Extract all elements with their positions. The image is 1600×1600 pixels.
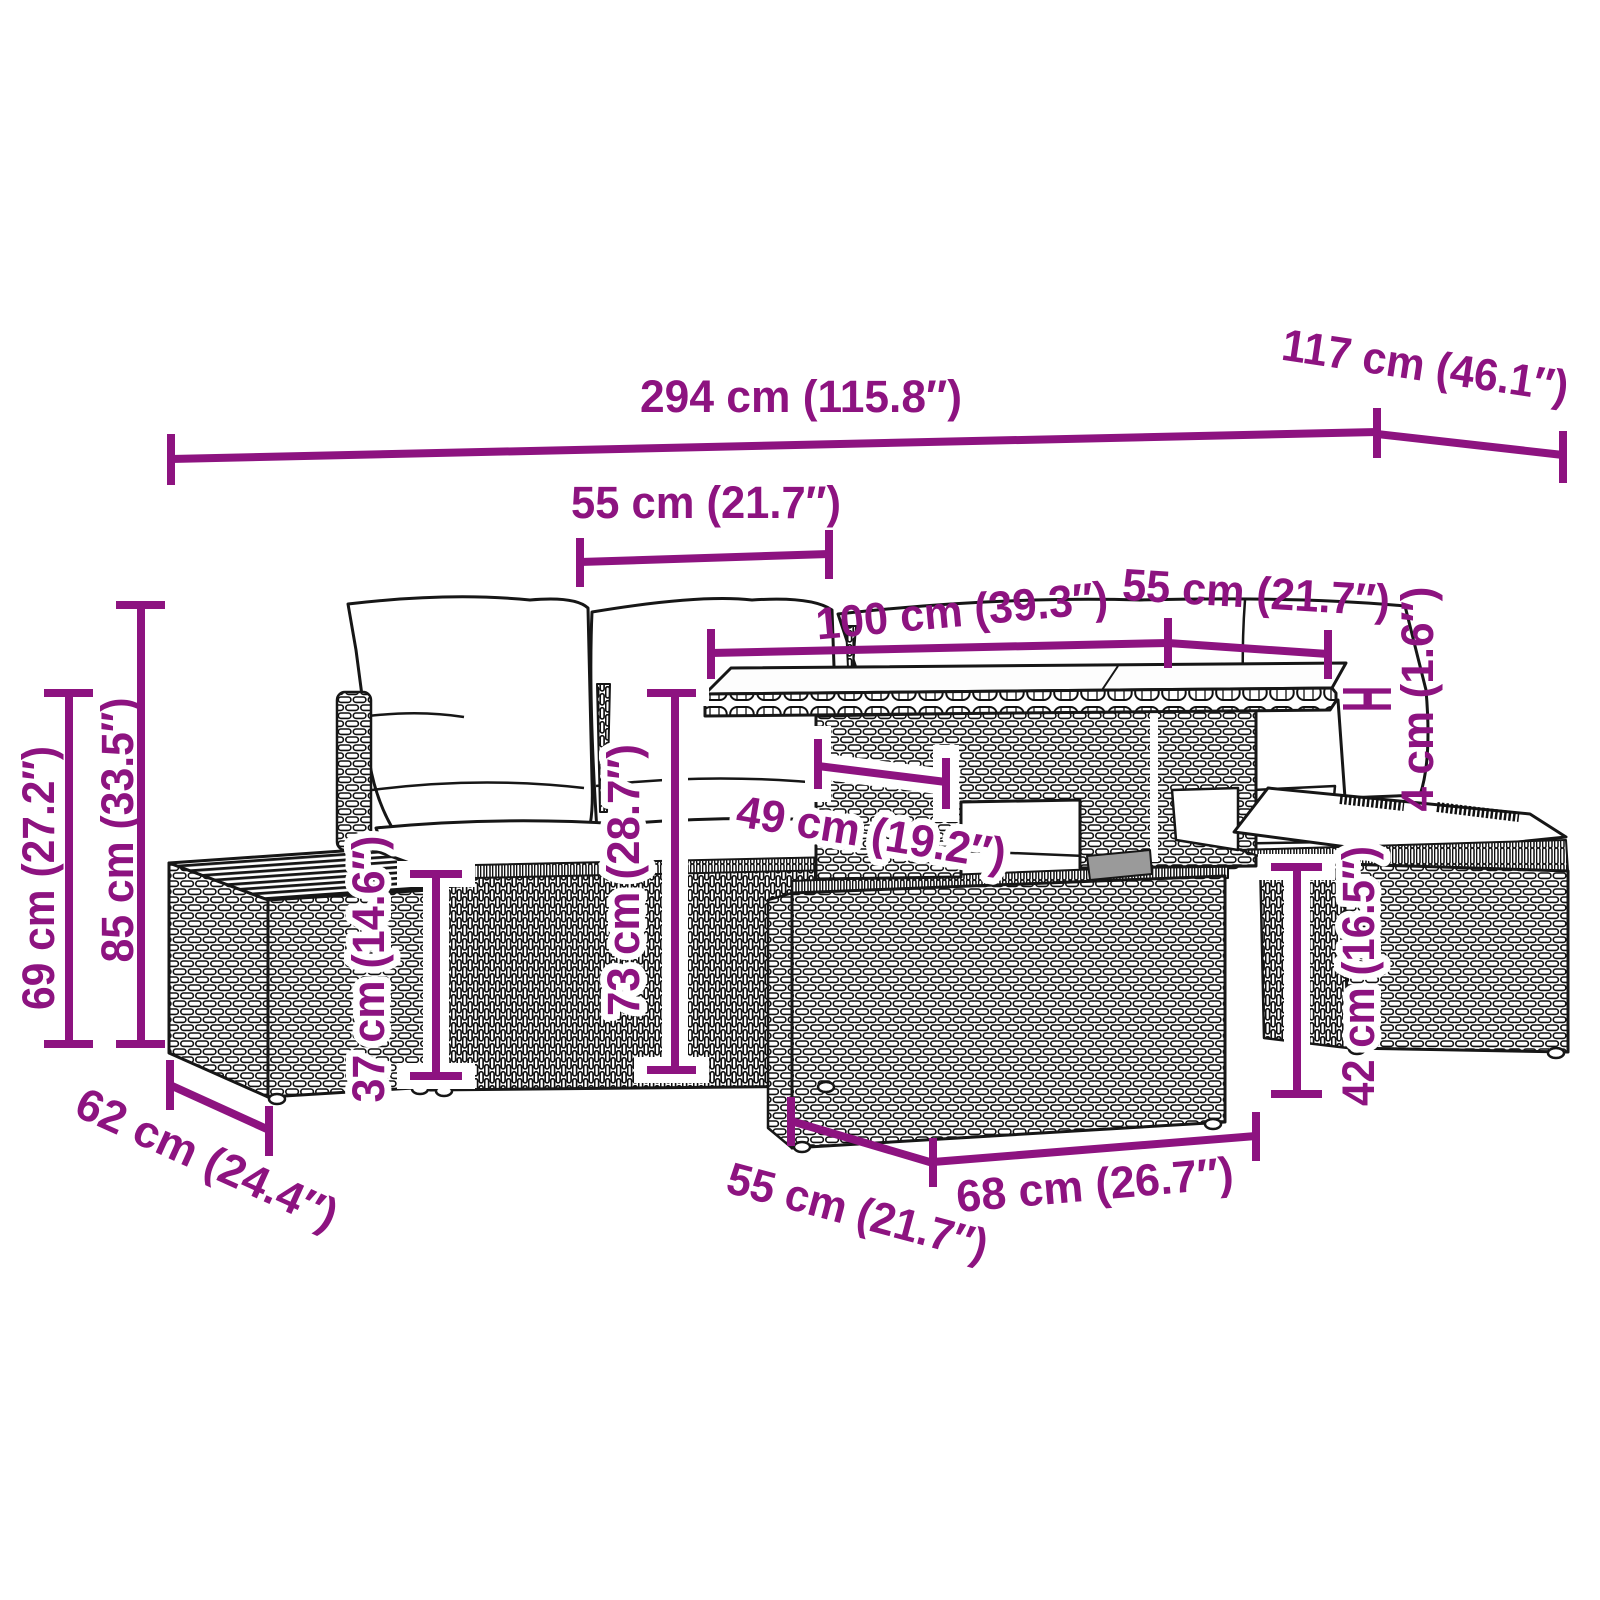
svg-text:69 cm (27.2″): 69 cm (27.2″) [13, 746, 64, 1010]
svg-text:294 cm (115.8″): 294 cm (115.8″) [640, 371, 962, 422]
svg-text:85 cm (33.5″): 85 cm (33.5″) [92, 698, 143, 963]
svg-text:42 cm (16.5″): 42 cm (16.5″) [1333, 846, 1384, 1106]
svg-text:4 cm (1.6″): 4 cm (1.6″) [1392, 587, 1443, 812]
svg-text:37 cm (14.6″): 37 cm (14.6″) [343, 836, 394, 1103]
svg-text:73 cm (28.7″): 73 cm (28.7″) [598, 744, 649, 1016]
svg-text:55 cm (21.7″): 55 cm (21.7″) [571, 477, 841, 528]
